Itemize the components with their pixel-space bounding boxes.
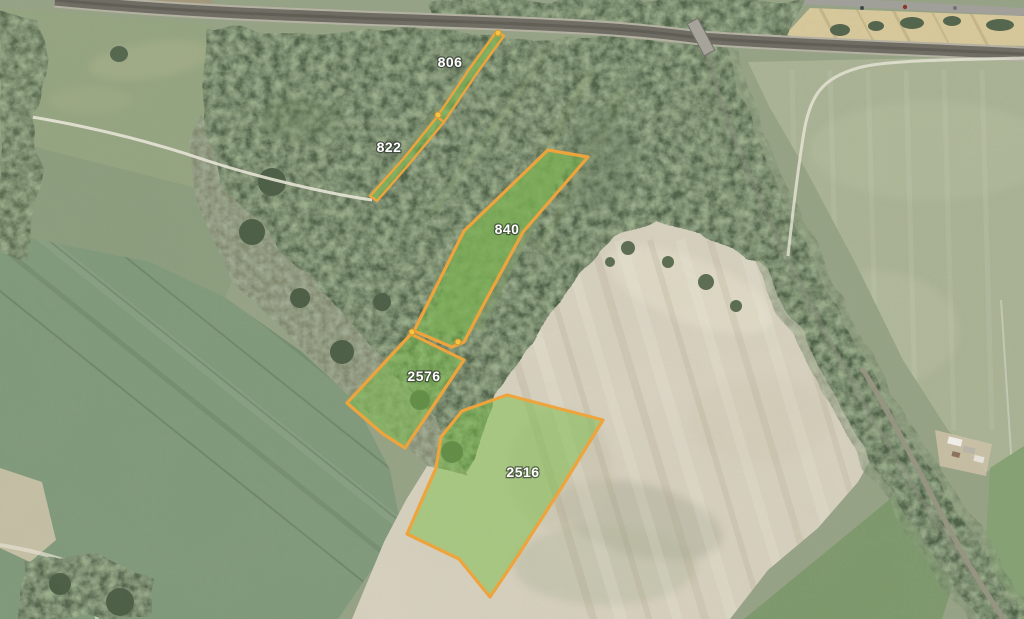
parcel-vertex-node[interactable] [455,339,461,345]
parcel-label-2516: 2516 [506,464,539,480]
parcel-label-2576: 2576 [407,368,440,384]
parcel-label-840: 840 [495,221,520,237]
parcel-vertex-node[interactable] [495,30,501,36]
map-canvas[interactable]: 80682284025762516 [0,0,1024,619]
parcel-vertex-node[interactable] [409,329,415,335]
parcel-label-822: 822 [377,139,402,155]
map-viewport[interactable]: 80682284025762516 [0,0,1024,619]
parcel-vertex-node[interactable] [435,112,441,118]
parcel-label-806: 806 [438,54,463,70]
